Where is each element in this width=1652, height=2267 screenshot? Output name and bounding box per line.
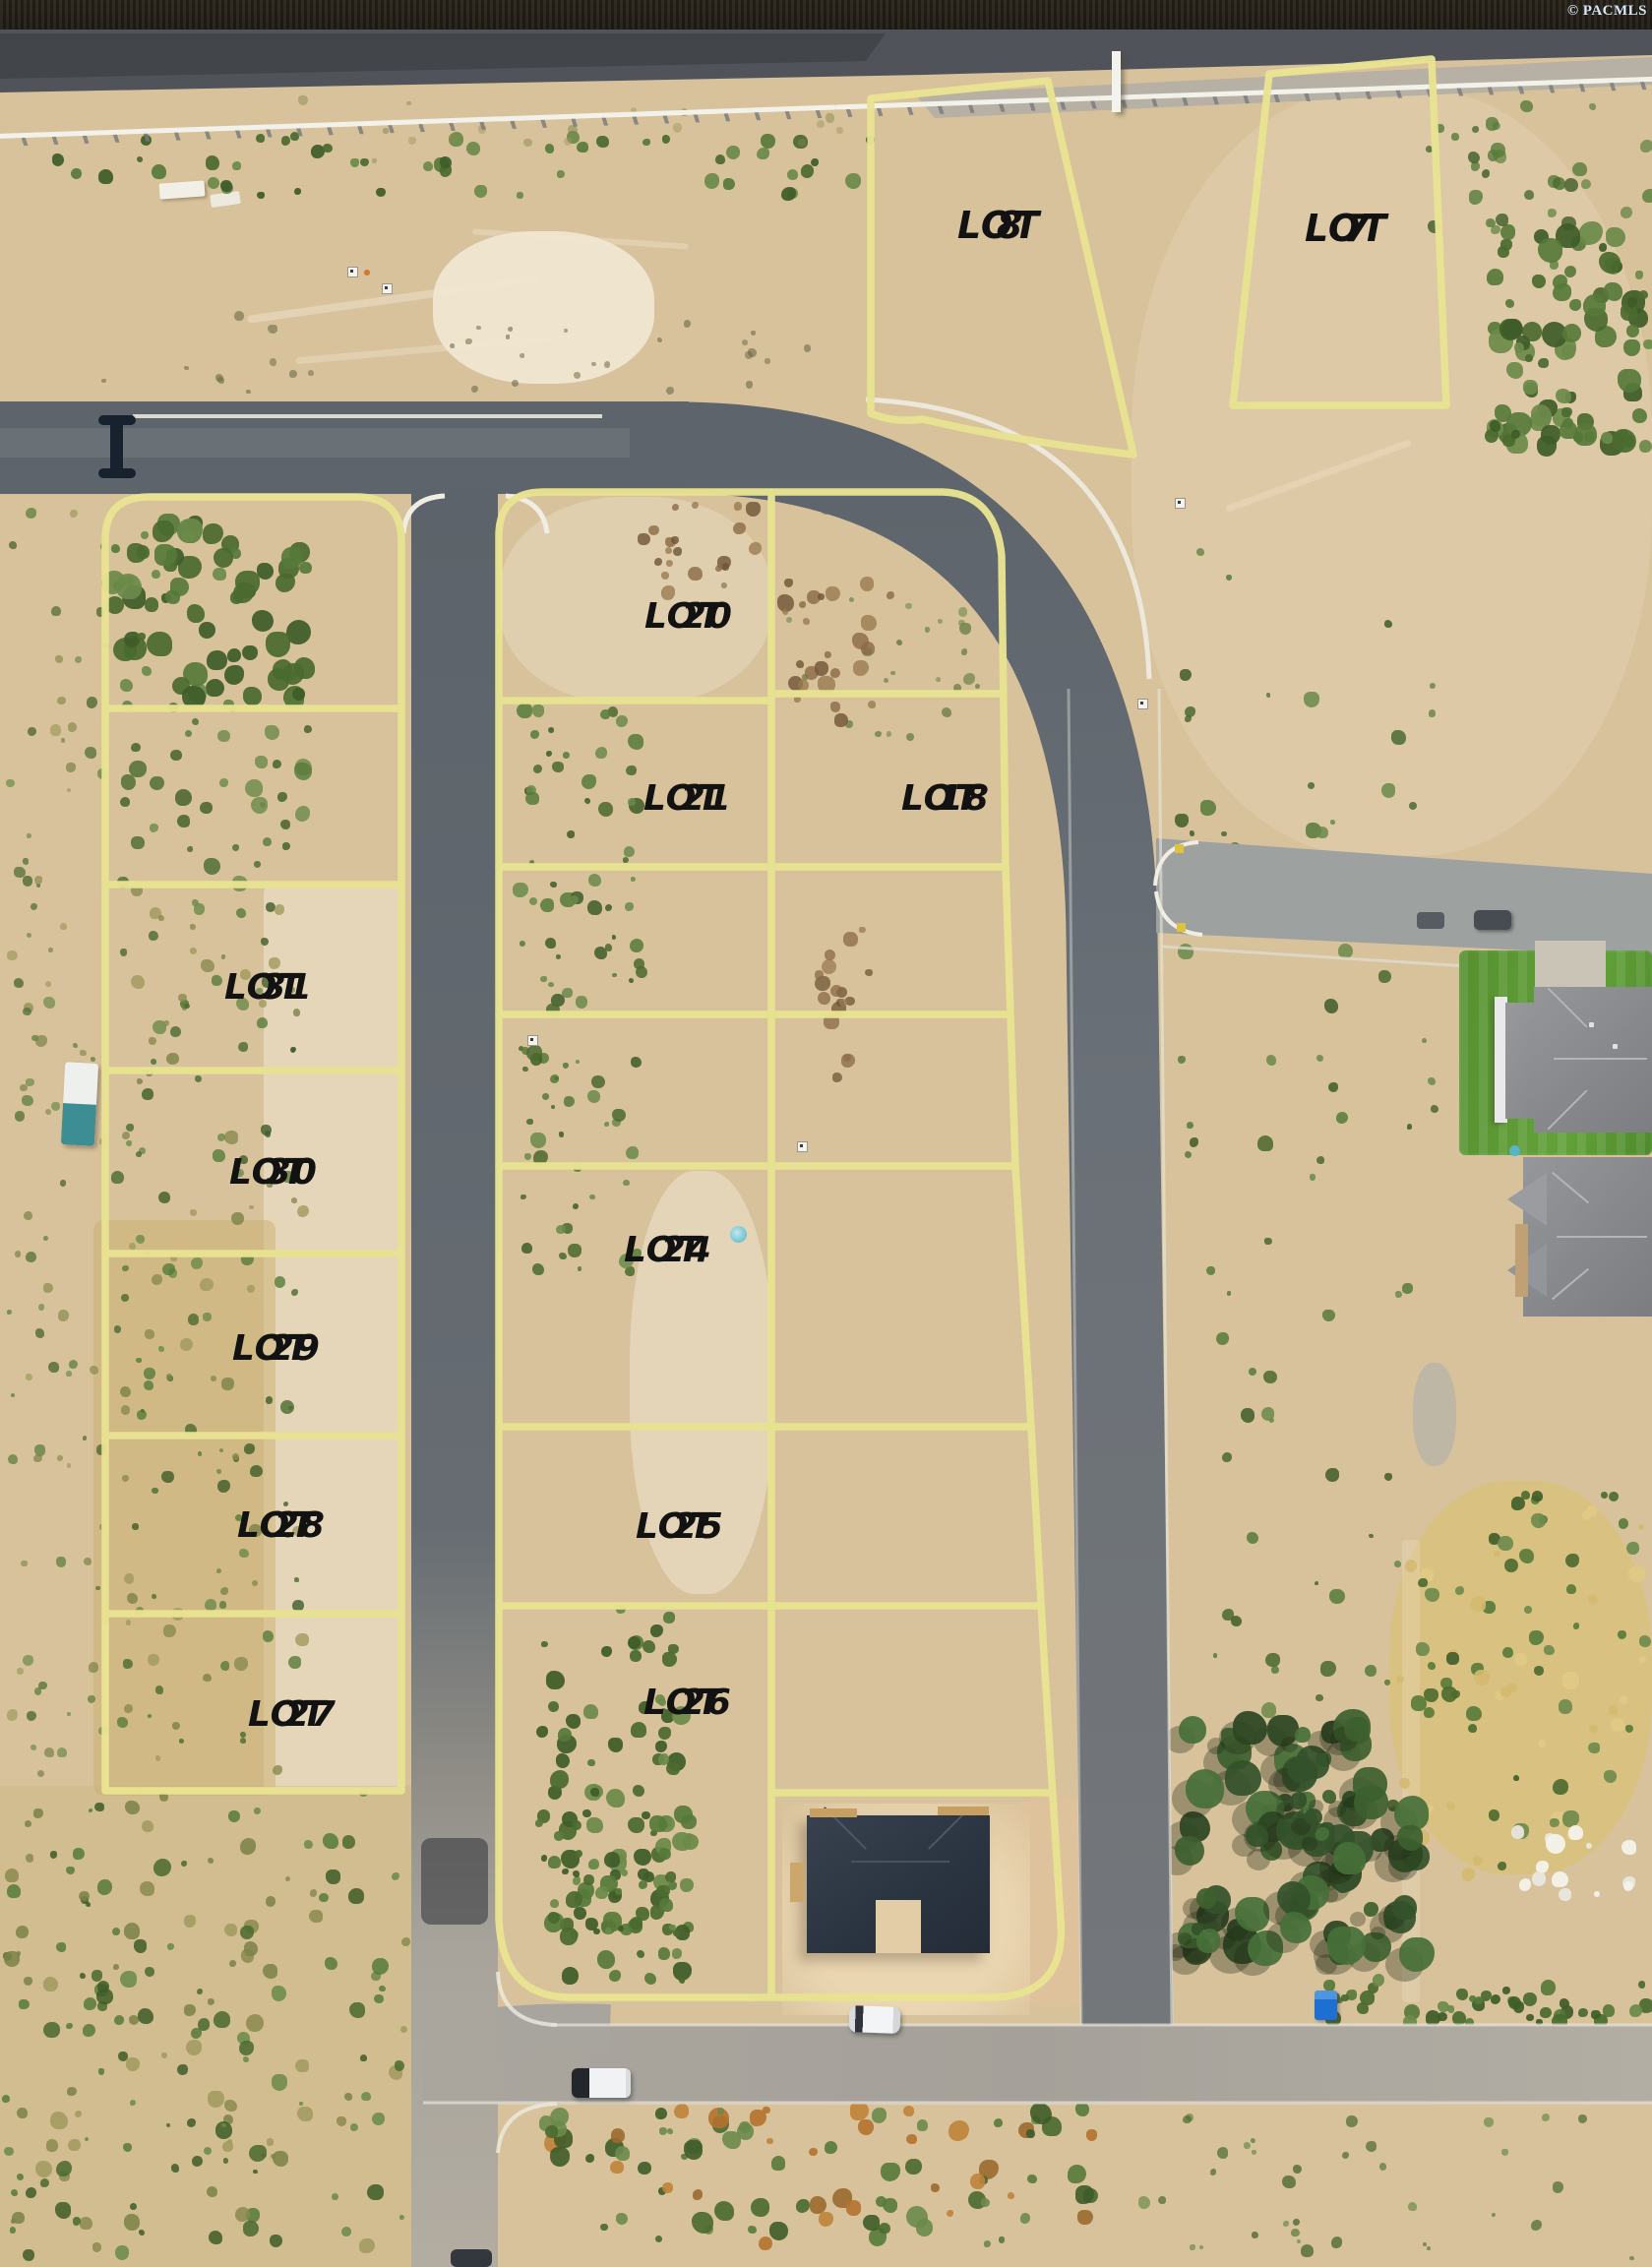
lot-boundary-lot8 [871,81,1133,455]
aerial-subdivision-photo: LOT8 LOT7 LOT20 LOT21 LOT18 LOT31 LOT30 … [0,0,1652,2267]
lot-boundary-east-column [771,492,1061,1997]
lot-boundary-left-column [105,497,401,1791]
watermark: © PACMLS [1567,3,1647,20]
lot-lines-svg [0,0,1652,2267]
